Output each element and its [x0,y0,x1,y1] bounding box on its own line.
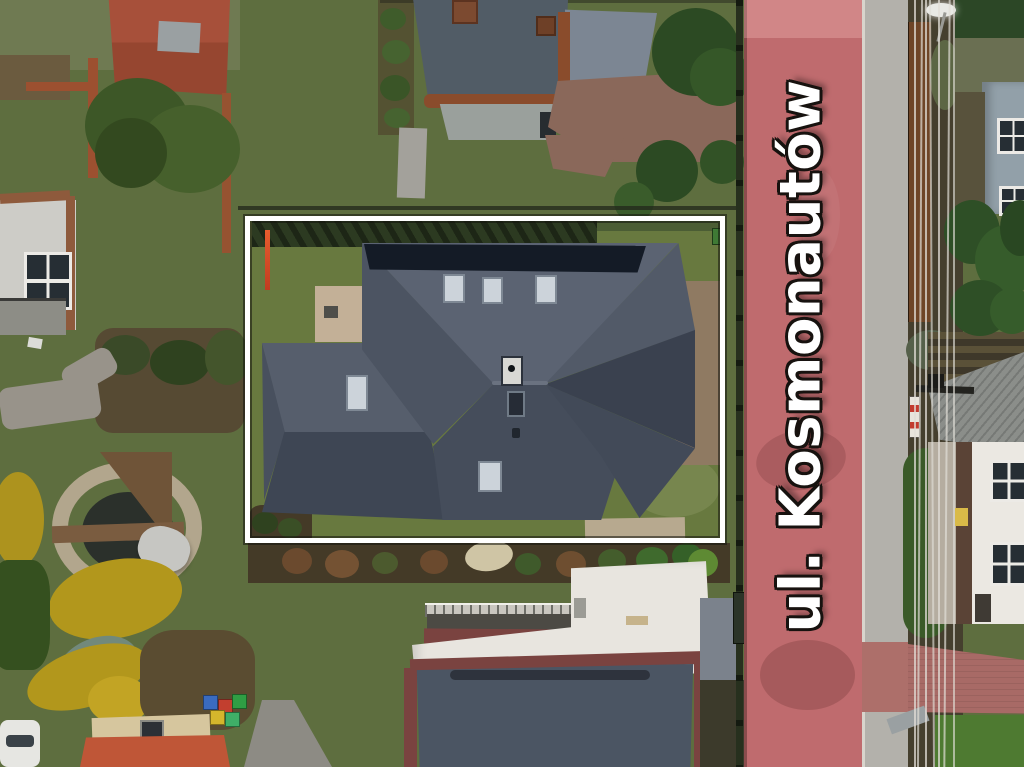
balcony-railing [0,298,66,335]
dark-shrub-row [0,560,50,670]
maroon-trim-left [404,668,417,767]
bed-bush-brown [282,548,312,574]
garage-skylight [157,21,201,53]
road-top-light [744,0,863,38]
plot-bush [380,8,406,30]
brick-path [545,135,625,177]
white-house-window [990,460,1024,502]
aerial-photo-scene: ul. Kosmonautów [0,0,1024,767]
property-boundary [245,216,725,543]
car-windshield [6,735,34,747]
bright-hedge-bottom [935,715,1024,767]
shrub [205,330,250,385]
power-line [914,0,916,767]
roof-soot-streak [450,670,650,680]
shrub [150,340,210,385]
beehive-green [232,694,247,709]
beehive-blue [203,695,218,710]
street-name-label: ul. Kosmonautów [769,80,834,633]
sidewalk-red-crossing [862,642,908,712]
red-tile-roof-southwest [80,735,230,767]
beehive-teal [225,712,240,727]
building-window [997,118,1024,154]
white-house-dark-wall [956,442,972,624]
power-line [953,0,955,767]
road-stain [760,640,855,710]
scrub-strip-east [955,92,985,210]
power-line [925,0,927,767]
bed-bush-brown [325,550,359,578]
plot-bush [382,40,410,64]
soil-bed [0,55,70,100]
bed-bush-green [515,553,541,575]
white-house-window [990,542,1024,586]
roof-vent-gray [574,598,586,618]
power-line [938,0,940,767]
plot-bush [384,108,410,128]
gray-garden-path [397,128,427,199]
big-tree-shadow [95,118,167,188]
beehive-yellow [210,710,225,725]
bed-bush-green [372,552,398,574]
beige-wall-skylight [140,720,164,739]
roadside-fence [736,0,743,767]
roof-vent-beige [626,616,648,625]
yellow-awning [955,508,968,526]
yellow-conifer-top [0,472,44,567]
plot-bush [380,75,410,101]
back-fence-line [238,206,738,210]
garden-table [27,337,43,349]
chimney-brown [452,0,478,24]
chimney-brown-small [536,16,556,36]
green-mesh-fence-top [955,0,1024,38]
bed-bush-brown [420,550,448,574]
white-house-door [975,594,991,622]
